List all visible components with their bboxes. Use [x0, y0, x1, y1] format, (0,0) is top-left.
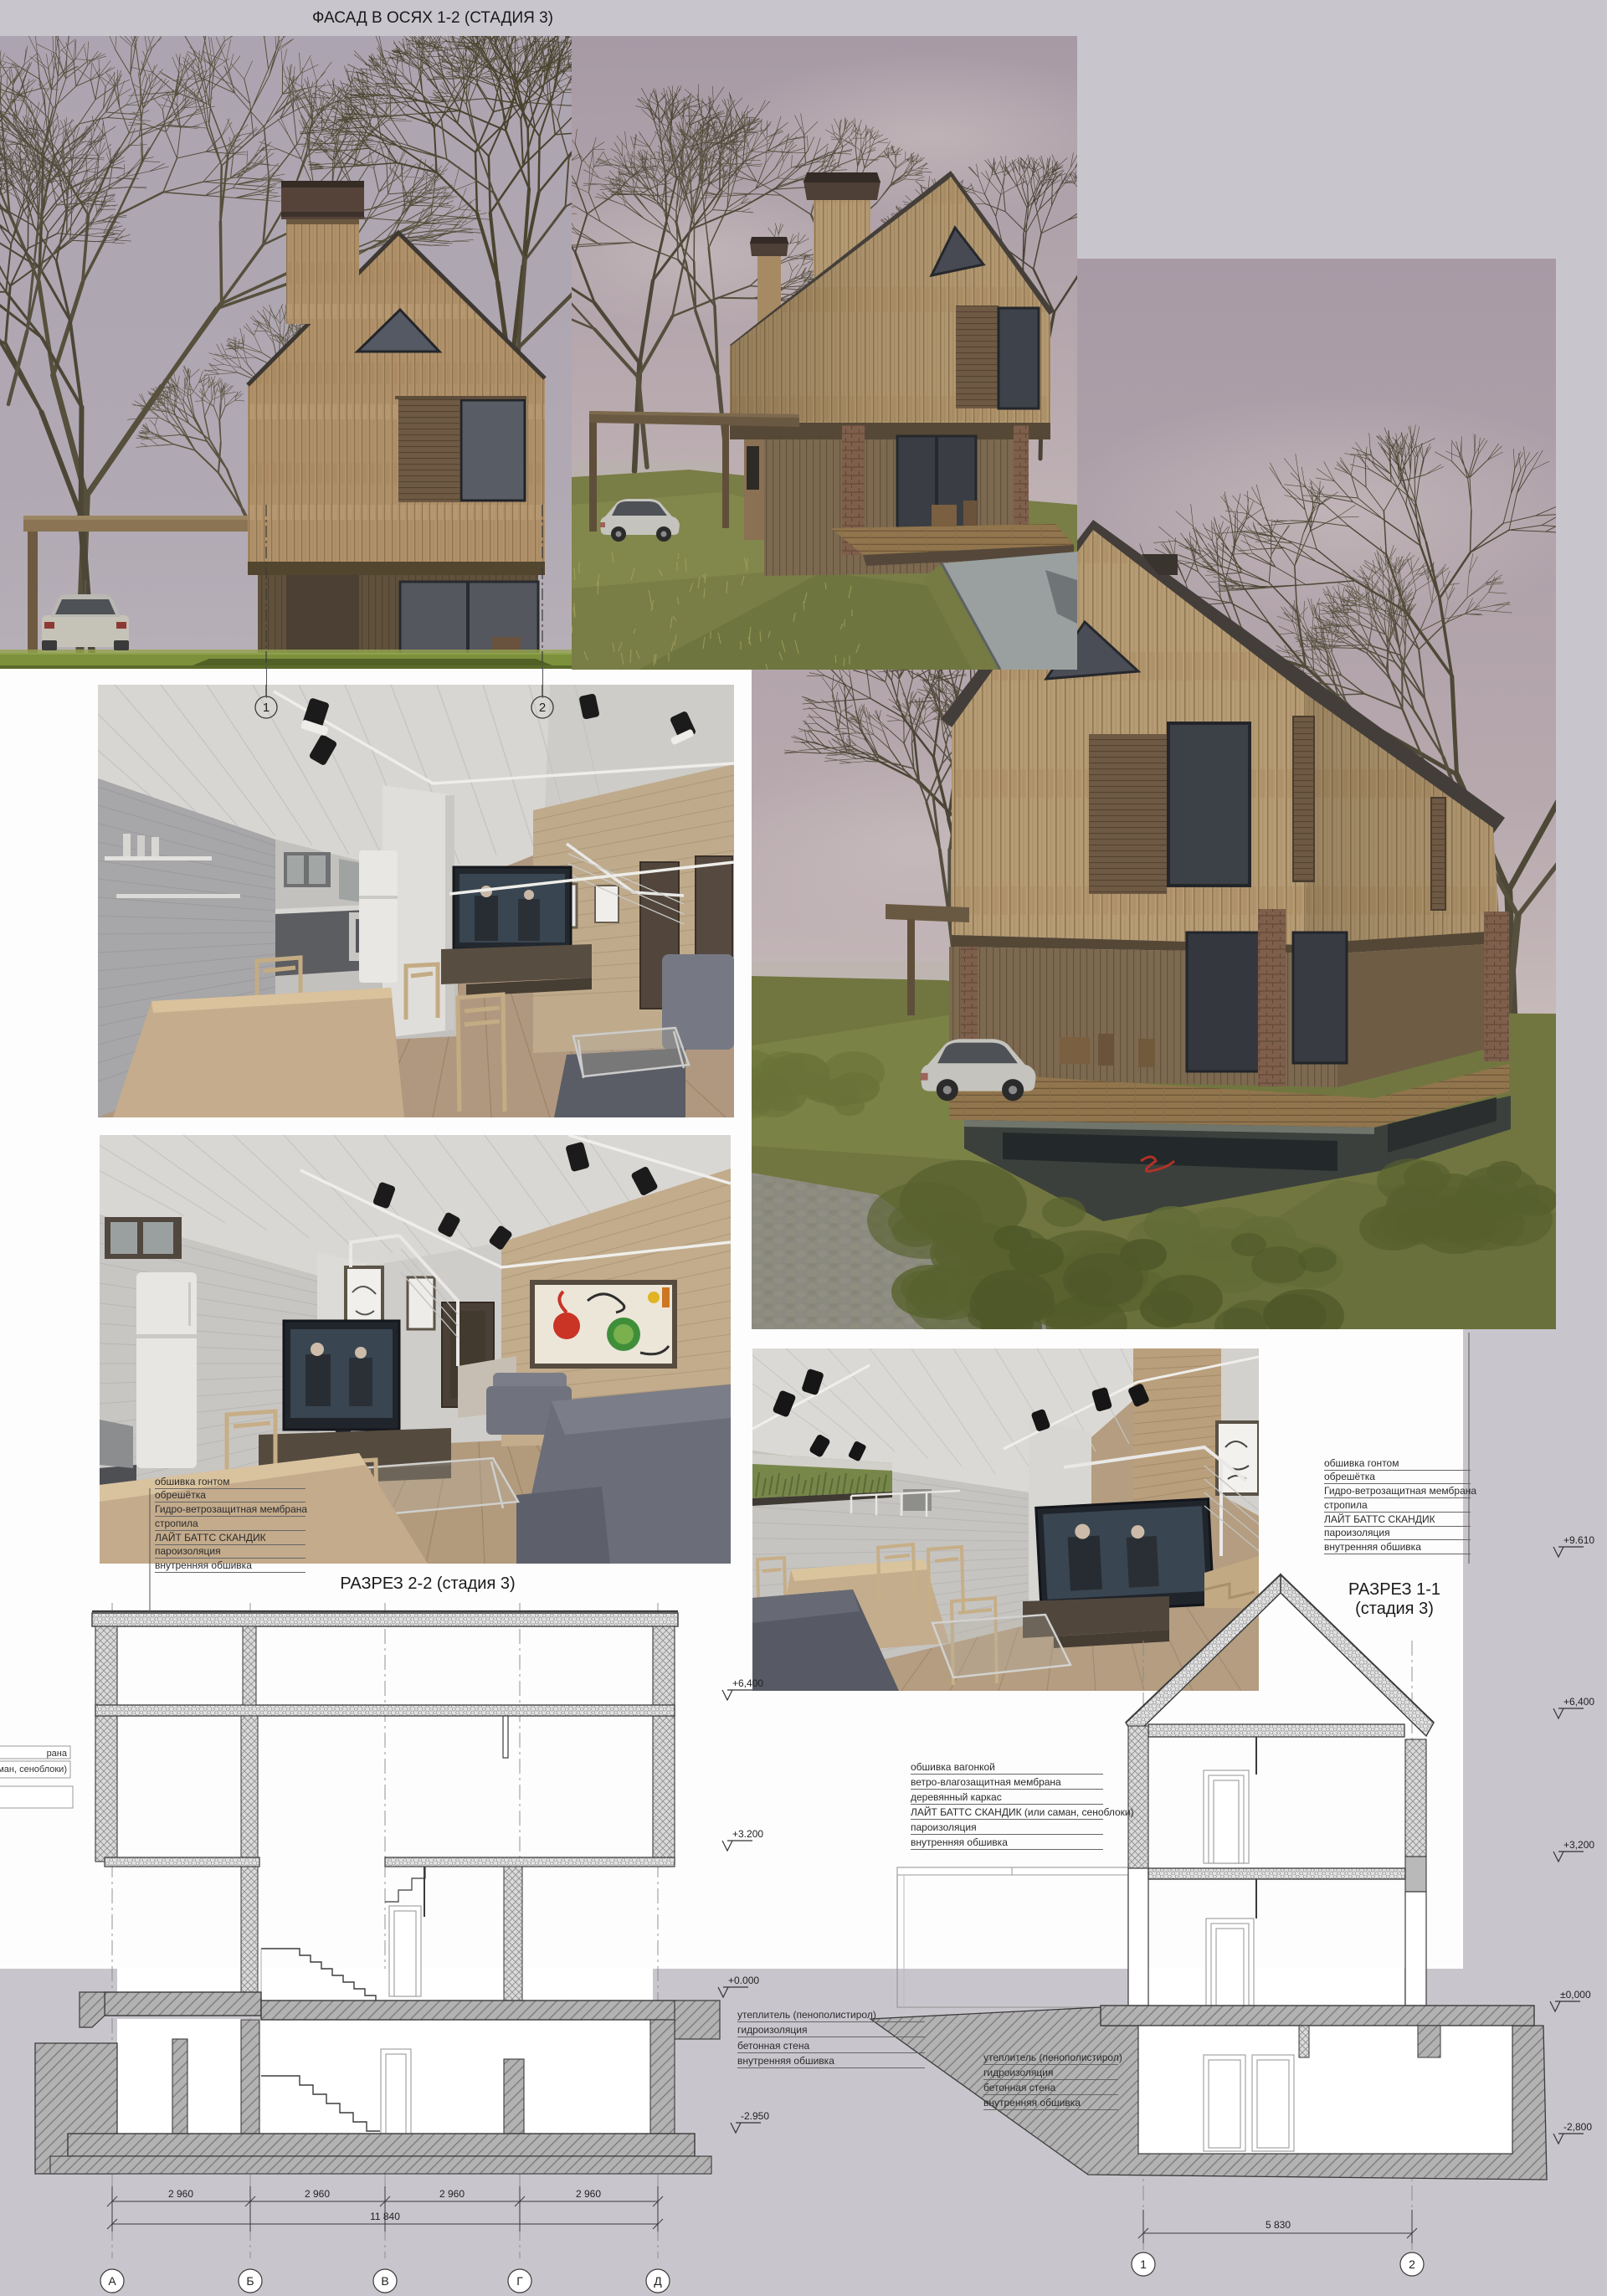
svg-text:2 960: 2 960	[439, 2188, 465, 2200]
svg-text:+6,400: +6,400	[732, 1677, 763, 1689]
svg-text:Б: Б	[246, 2274, 254, 2288]
svg-text:2: 2	[1409, 2257, 1415, 2271]
svg-text:5 830: 5 830	[1266, 2219, 1291, 2231]
svg-text:+6,400: +6,400	[1563, 1696, 1594, 1708]
svg-text:Д: Д	[654, 2274, 662, 2288]
svg-text:+3,200: +3,200	[1563, 1839, 1594, 1851]
svg-text:+9.610: +9.610	[1563, 1534, 1594, 1546]
svg-text:+0.000: +0.000	[728, 1975, 759, 1986]
svg-text:аман, сеноблоки): аман, сеноблоки)	[0, 1764, 67, 1775]
svg-text:11 840: 11 840	[370, 2211, 400, 2222]
svg-text:2 960: 2 960	[305, 2188, 330, 2200]
svg-text:А: А	[108, 2274, 116, 2288]
svg-text:2 960: 2 960	[576, 2188, 601, 2200]
svg-text:-2.950: -2.950	[741, 2110, 769, 2122]
svg-text:+3.200: +3.200	[732, 1828, 763, 1840]
svg-text:Г: Г	[516, 2274, 523, 2288]
svg-text:рана: рана	[47, 1749, 68, 1759]
svg-text:В: В	[381, 2274, 388, 2288]
svg-text:-2,800: -2,800	[1563, 2121, 1592, 2133]
svg-text:1: 1	[1140, 2257, 1147, 2271]
svg-text:2 960: 2 960	[168, 2188, 193, 2200]
svg-text:±0,000: ±0,000	[1560, 1989, 1591, 2001]
